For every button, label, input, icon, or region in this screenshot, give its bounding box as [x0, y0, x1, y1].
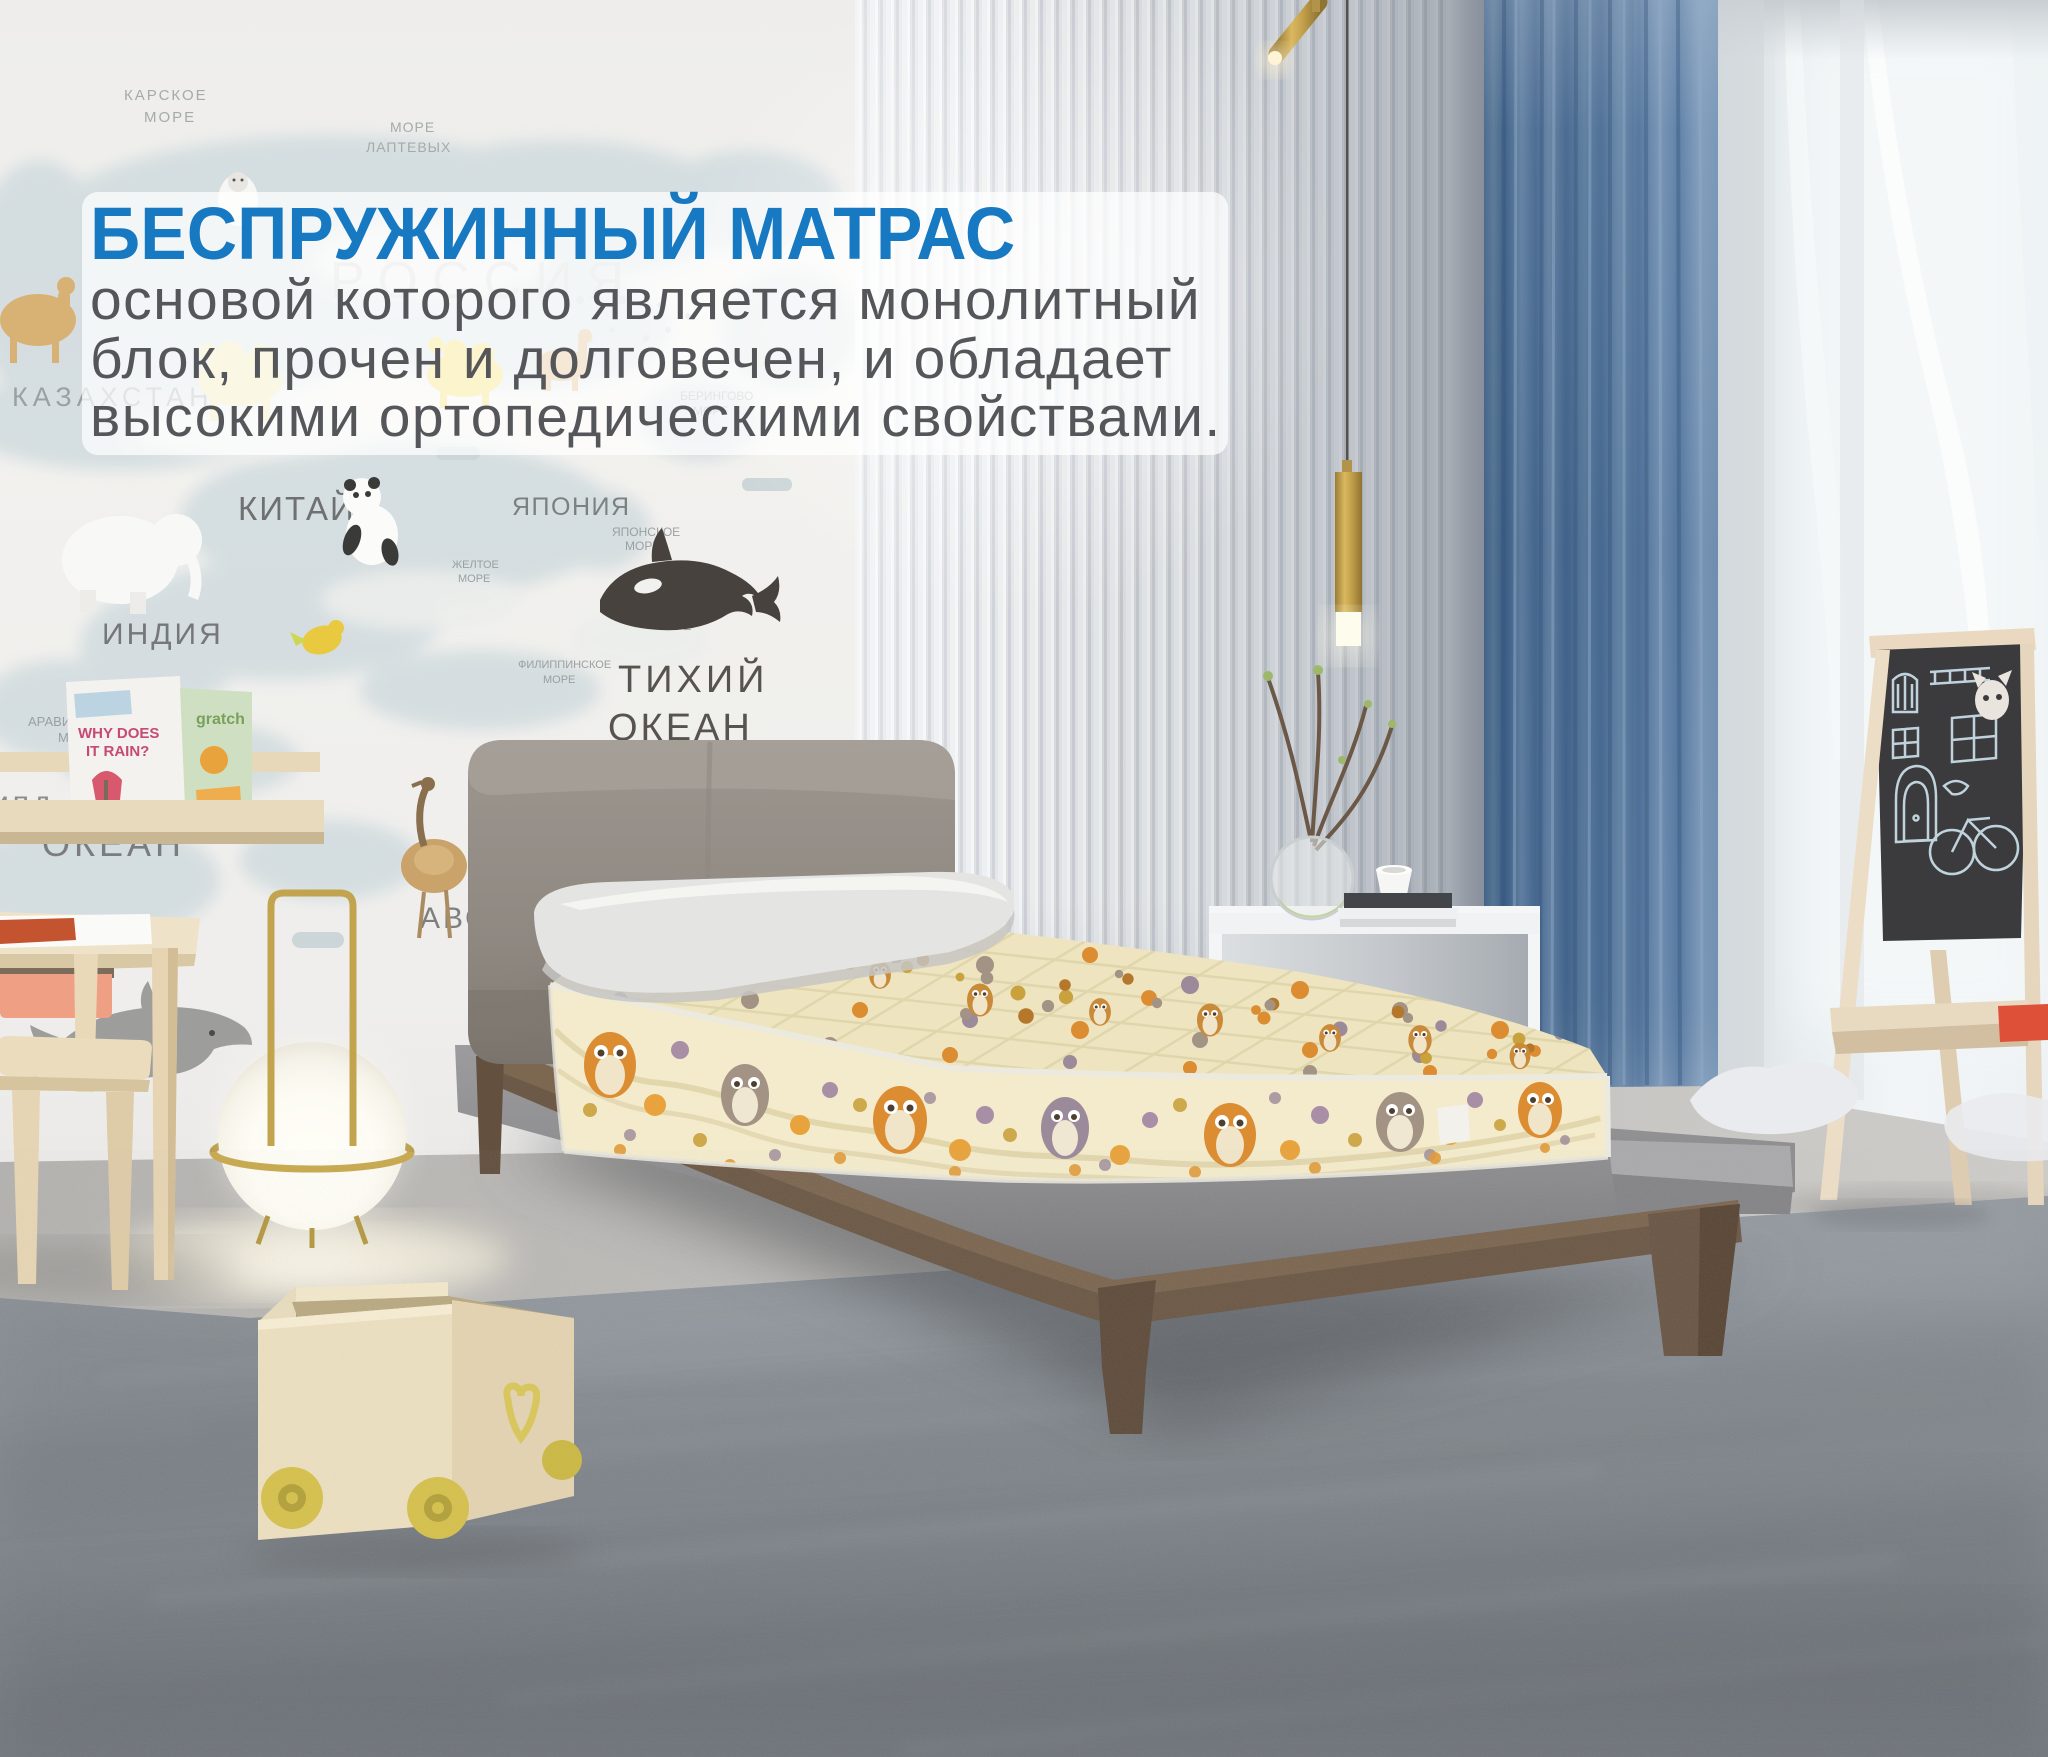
- svg-text:ЯПОНСКОЕ: ЯПОНСКОЕ: [612, 525, 680, 539]
- svg-text:МОРЕ: МОРЕ: [144, 109, 196, 126]
- svg-text:КАРСКОЕ: КАРСКОЕ: [124, 87, 208, 104]
- svg-text:ЛАПТЕВЫХ: ЛАПТЕВЫХ: [366, 139, 451, 155]
- svg-text:ЯПОНИЯ: ЯПОНИЯ: [512, 493, 631, 521]
- svg-text:WHY DOES: WHY DOES: [78, 725, 159, 742]
- svg-text:МОРЕ: МОРЕ: [390, 119, 435, 135]
- svg-text:ТИХИЙ: ТИХИЙ: [618, 656, 769, 701]
- svg-text:КИТАЙ: КИТАЙ: [238, 490, 356, 527]
- svg-text:МОРЕ: МОРЕ: [458, 573, 490, 585]
- svg-text:МОРЕ: МОРЕ: [543, 674, 575, 686]
- svg-text:IT RAIN?: IT RAIN?: [86, 743, 149, 760]
- svg-text:gratch: gratch: [196, 711, 245, 728]
- svg-text:ИНДИЯ: ИНДИЯ: [102, 618, 224, 651]
- svg-text:ФИЛИППИНСКОЕ: ФИЛИППИНСКОЕ: [518, 659, 611, 671]
- svg-text:ЖЕЛТОЕ: ЖЕЛТОЕ: [452, 559, 499, 571]
